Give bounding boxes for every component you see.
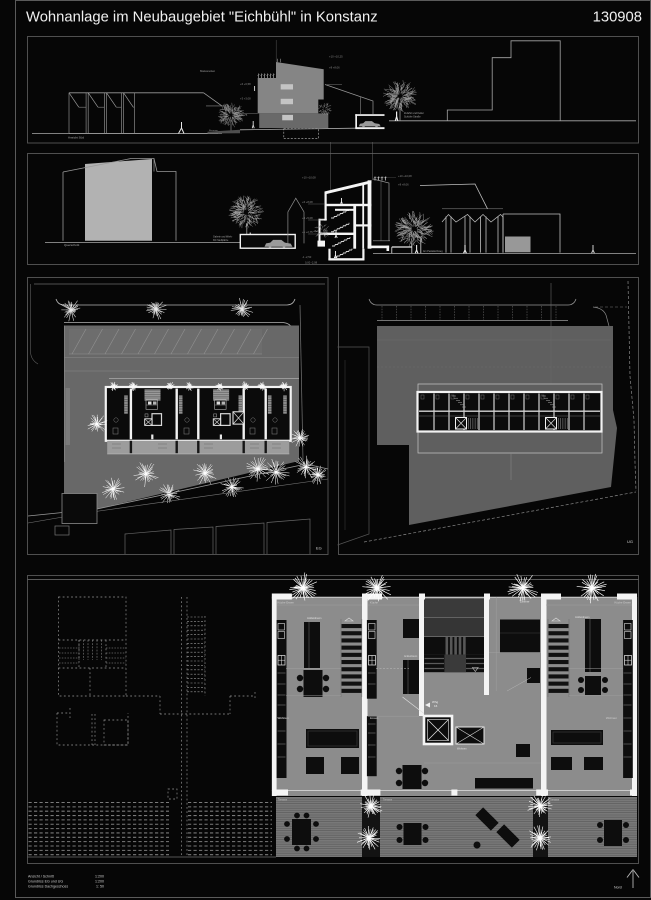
svg-text:EG: EG	[316, 546, 322, 551]
svg-text:Terrasse: Terrasse	[278, 799, 288, 802]
svg-text:+6 +8,08: +6 +8,08	[302, 200, 313, 204]
svg-text:Ankleidraum: Ankleidraum	[575, 615, 589, 619]
svg-text:Wohnen: Wohnen	[606, 716, 617, 720]
svg-text:Essen: Essen	[370, 716, 379, 720]
svg-text:+10 +10,08: +10 +10,08	[398, 174, 412, 178]
svg-text:+10 +10,08: +10 +10,08	[302, 176, 316, 180]
svg-text:Zimmer: Zimmer	[520, 600, 530, 604]
svg-text:Grundriss Dachgeschoss: Grundriss Dachgeschoss	[28, 885, 68, 889]
svg-text:Grundriss EG und UG: Grundriss EG und UG	[28, 880, 63, 884]
svg-text:130908: 130908	[593, 10, 642, 26]
svg-text:Maisonetten: Maisonetten	[200, 69, 216, 73]
svg-text:Schürle Straße: Schürle Straße	[404, 116, 421, 119]
svg-text:+1 +2,75: +1 +2,75	[302, 230, 313, 234]
svg-text:16: 16	[434, 704, 438, 708]
svg-text:Ankleidraum: Ankleidraum	[404, 655, 417, 658]
svg-text:+8 +8,06: +8 +8,06	[398, 183, 409, 187]
svg-text:Küche Essen: Küche Essen	[278, 601, 295, 605]
svg-text:Querschnitt: Querschnitt	[64, 243, 80, 247]
svg-text:Küche: Küche	[370, 601, 378, 605]
svg-text:Ansicht Süd: Ansicht Süd	[68, 136, 84, 140]
svg-text:Ankleidraum: Ankleidraum	[307, 616, 321, 620]
svg-text:+10 +10,25: +10 +10,25	[329, 55, 343, 59]
svg-text:Kfz-Stellplätze: Kfz-Stellplätze	[213, 239, 229, 242]
svg-text:Wohnanlage im Neubaugebiet "Ei: Wohnanlage im Neubaugebiet "Eichbühl" in…	[26, 10, 378, 26]
svg-text:UG: UG	[627, 539, 633, 544]
svg-text:Küche Essen: Küche Essen	[615, 601, 632, 605]
svg-text:Wohnen: Wohnen	[457, 747, 467, 751]
svg-text:Nord: Nord	[614, 886, 622, 890]
svg-text:Ansicht / Schnitt: Ansicht / Schnitt	[28, 875, 54, 879]
svg-text:+3 +5,08: +3 +5,08	[302, 216, 313, 220]
svg-text:1: 50: 1: 50	[96, 885, 104, 889]
svg-text:-1 -2,50: -1 -2,50	[302, 255, 312, 259]
svg-text:Terrasse: Terrasse	[383, 799, 393, 802]
svg-text:Am Pestalozziweg: Am Pestalozziweg	[423, 250, 443, 253]
svg-text:+3 +3,08: +3 +3,08	[240, 97, 251, 101]
svg-text:1:200: 1:200	[95, 875, 104, 879]
svg-text:+6 +6,58: +6 +6,58	[240, 82, 251, 86]
svg-text:0,00 -2,08: 0,00 -2,08	[305, 260, 318, 264]
svg-text:Terrasse: Terrasse	[550, 799, 560, 802]
svg-text:1:200: 1:200	[95, 880, 104, 884]
svg-text:Wohnen: Wohnen	[278, 716, 289, 720]
svg-text:+8 +8,06: +8 +8,06	[329, 66, 340, 70]
